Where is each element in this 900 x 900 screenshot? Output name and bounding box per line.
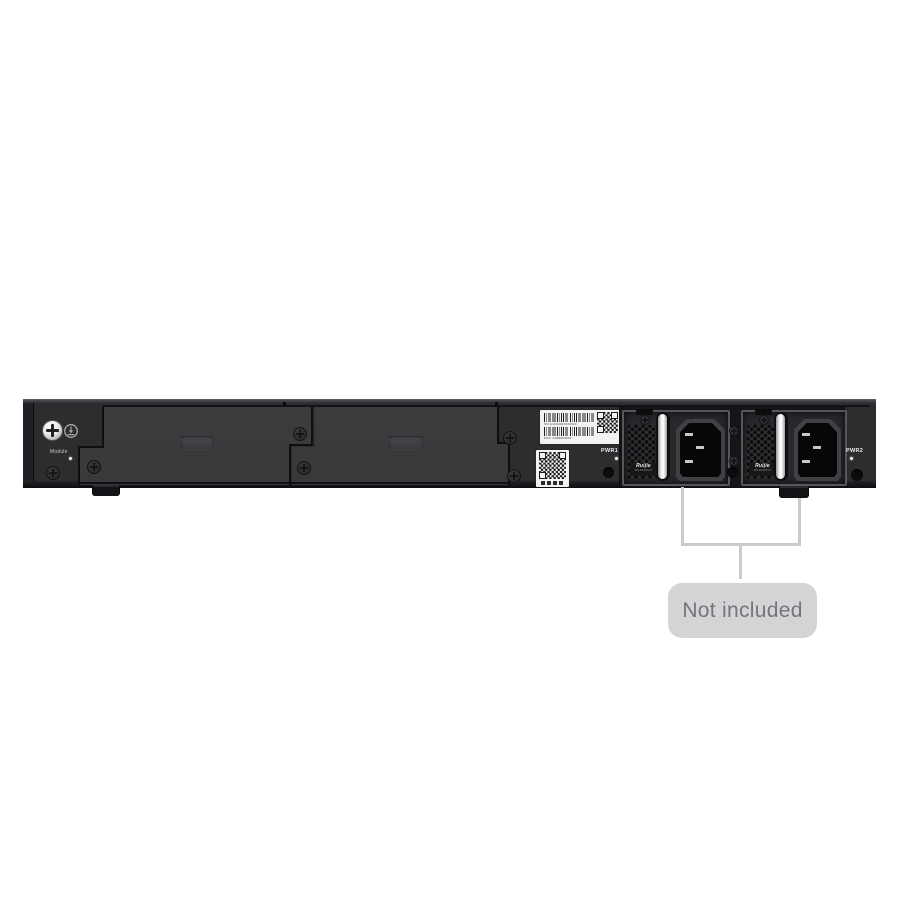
callout-line-stem <box>739 546 742 579</box>
psu2-handle <box>776 414 785 479</box>
screw-icon <box>503 431 517 445</box>
panel-gap-left-2 <box>78 446 104 448</box>
screw-icon <box>759 415 769 425</box>
panel-gap-mid-3 <box>289 444 291 485</box>
barcode-icon <box>544 413 594 422</box>
panel-gap-right-1 <box>497 407 499 444</box>
barcode-label: SN G1K02047200019 MAC G089063802 <box>540 410 620 444</box>
chassis-left-face <box>23 403 34 488</box>
psu1-handle <box>658 414 667 479</box>
panel-gap-bottom <box>79 482 510 484</box>
panel-notch-1 <box>283 402 286 406</box>
psu-model-text: RG-PA150I-F <box>749 469 776 473</box>
panel-gap-left-3 <box>78 446 80 485</box>
psu2-brand-label: Ruijie RG-PA150I-F <box>749 463 776 476</box>
screw-icon <box>729 456 739 466</box>
product-image: Module SN G1K02047200019 MAC G089063802 … <box>0 0 900 900</box>
inlet-pin <box>813 446 821 449</box>
qr-caption-glyph <box>547 481 551 485</box>
barcode-icon <box>544 427 594 436</box>
psu1-brand-label: Ruijie RG-PA150I-F <box>630 463 657 476</box>
qr-caption-glyph <box>553 481 557 485</box>
callout-box: Not included <box>668 583 817 638</box>
mounting-foot-right <box>779 486 809 498</box>
panel-gap-mid-1 <box>311 407 313 446</box>
screw-icon <box>87 460 101 474</box>
chassis-hole <box>727 467 738 478</box>
inlet-pin <box>696 446 704 449</box>
serial-number-text: SN G1K02047200019 <box>544 423 596 426</box>
pwr1-led <box>615 457 618 460</box>
phillips-screw-icon <box>42 420 63 441</box>
screw-icon <box>297 461 311 475</box>
panel-notch-2 <box>495 402 498 406</box>
qr-code-icon <box>597 412 618 433</box>
qr-caption-glyph <box>559 481 563 485</box>
panel-gap-left-1 <box>102 407 104 448</box>
panel-gap-mid-2 <box>289 444 313 446</box>
cover-handle-indent-1 <box>181 436 213 449</box>
screw-icon <box>729 426 739 436</box>
qr-code-icon <box>539 452 566 479</box>
inlet-pin <box>802 433 810 436</box>
screw-icon <box>293 427 307 441</box>
psu2-power-inlet-recess <box>798 423 837 477</box>
chassis-hole <box>603 467 614 478</box>
inlet-pin <box>802 460 810 463</box>
callout-text: Not included <box>682 599 802 623</box>
psu-model-text: RG-PA150I-F <box>630 469 657 473</box>
chassis-top-edge <box>23 399 876 403</box>
ground-icon <box>63 423 79 439</box>
qr-caption-glyph <box>541 481 545 485</box>
callout-line-left <box>681 487 684 546</box>
mounting-foot-left <box>92 485 120 496</box>
cover-handle-indent-2 <box>389 436 423 449</box>
screw-icon <box>46 466 60 480</box>
screw-icon <box>640 415 650 425</box>
pwr2-led <box>850 457 853 460</box>
inlet-pin <box>685 433 693 436</box>
module-slot-label: Module <box>50 450 74 455</box>
qr-label <box>536 450 569 487</box>
psu1-power-inlet-recess <box>680 423 721 477</box>
chassis-hole <box>851 469 863 481</box>
module-led <box>69 457 72 460</box>
mac-address-text: MAC G089063802 <box>544 437 596 440</box>
screw-icon <box>507 469 521 483</box>
pwr2-label: PWR2 <box>846 449 868 455</box>
inlet-pin <box>685 460 693 463</box>
